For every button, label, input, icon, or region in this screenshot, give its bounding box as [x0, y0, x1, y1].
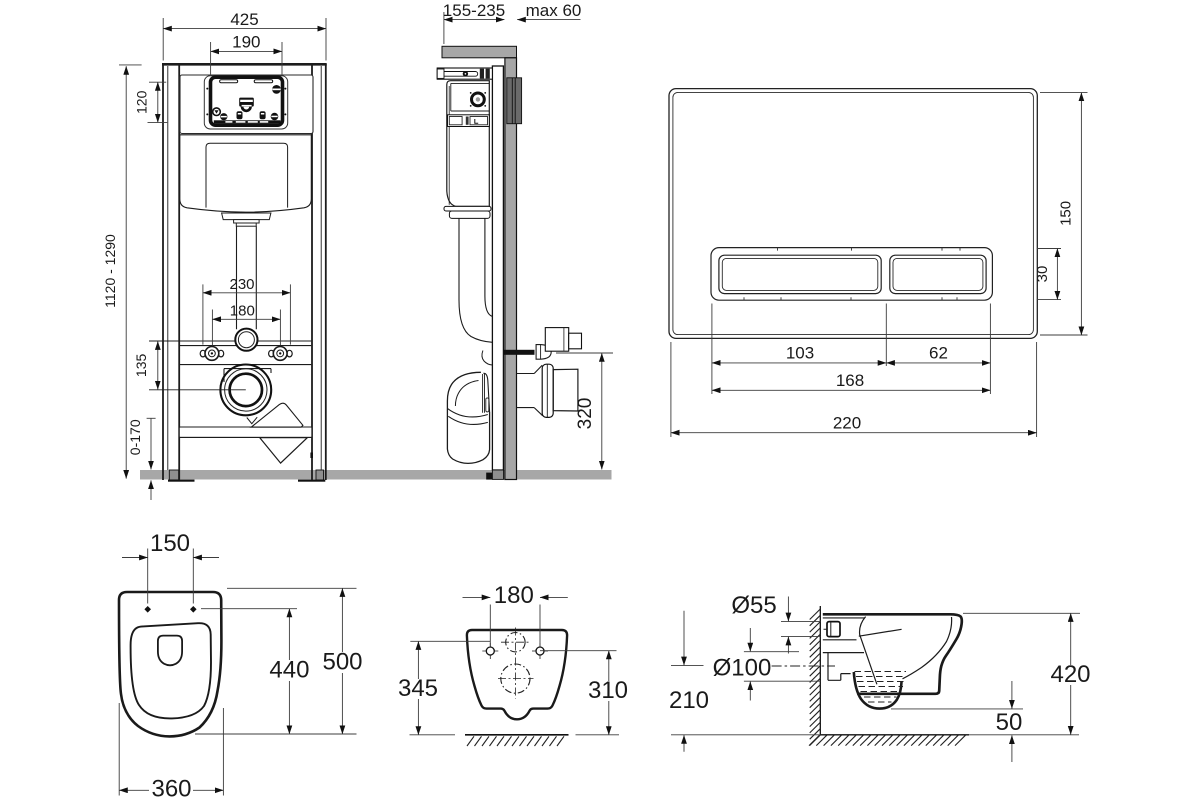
svg-text:345: 345	[398, 675, 438, 702]
svg-text:168: 168	[836, 371, 864, 390]
svg-text:1120 - 1290: 1120 - 1290	[102, 234, 118, 308]
svg-text:220: 220	[833, 413, 861, 432]
svg-text:440: 440	[269, 657, 309, 684]
svg-text:120: 120	[134, 90, 150, 114]
svg-text:62: 62	[929, 344, 948, 363]
svg-text:425: 425	[230, 10, 258, 29]
svg-text:320: 320	[575, 398, 596, 430]
svg-text:210: 210	[669, 687, 709, 714]
svg-text:180: 180	[494, 582, 534, 609]
svg-text:190: 190	[232, 33, 260, 52]
svg-text:Ø100: Ø100	[713, 655, 772, 682]
svg-text:0-170: 0-170	[127, 419, 143, 455]
svg-text:310: 310	[588, 677, 628, 704]
svg-text:230: 230	[229, 276, 254, 293]
svg-text:Ø55: Ø55	[731, 592, 776, 619]
svg-text:135: 135	[133, 354, 149, 378]
svg-text:155-235: 155-235	[443, 1, 505, 20]
svg-text:50: 50	[996, 709, 1023, 736]
svg-text:180: 180	[230, 303, 255, 320]
svg-text:max 60: max 60	[526, 1, 582, 20]
svg-text:30: 30	[1034, 266, 1051, 283]
svg-text:150: 150	[150, 530, 190, 557]
svg-text:103: 103	[786, 344, 814, 363]
svg-text:150: 150	[1058, 201, 1075, 226]
svg-text:360: 360	[151, 776, 191, 800]
svg-text:500: 500	[322, 649, 362, 676]
svg-text:420: 420	[1050, 661, 1090, 688]
